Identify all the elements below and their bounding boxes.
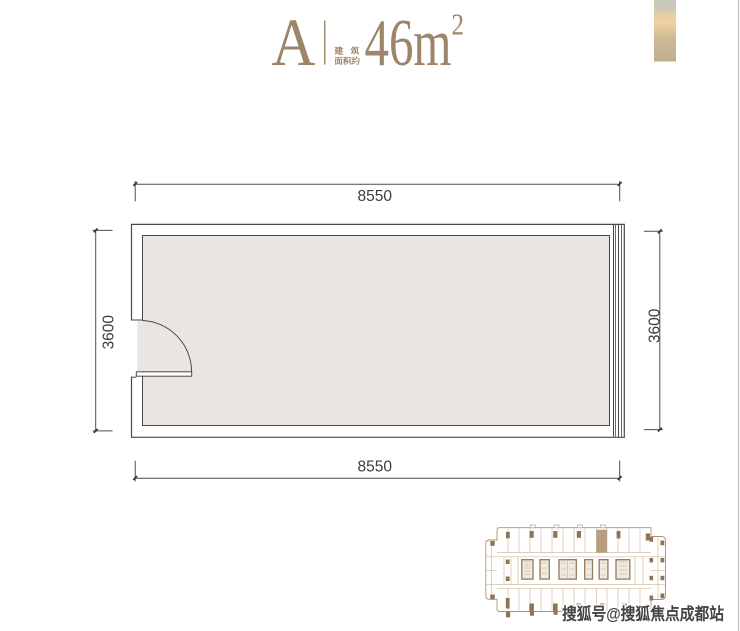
svg-text:搜狐号@搜狐焦点成都站: 搜狐号@搜狐焦点成都站 — [562, 604, 724, 624]
svg-text:8550: 8550 — [358, 458, 393, 475]
svg-text:8550: 8550 — [358, 188, 393, 205]
svg-text:46m: 46m — [365, 6, 452, 80]
svg-text:A: A — [272, 4, 316, 80]
svg-text:2: 2 — [452, 6, 465, 41]
svg-text:3600: 3600 — [101, 315, 118, 350]
svg-text:3600: 3600 — [646, 308, 663, 343]
svg-text:面积约: 面积约 — [334, 56, 360, 67]
